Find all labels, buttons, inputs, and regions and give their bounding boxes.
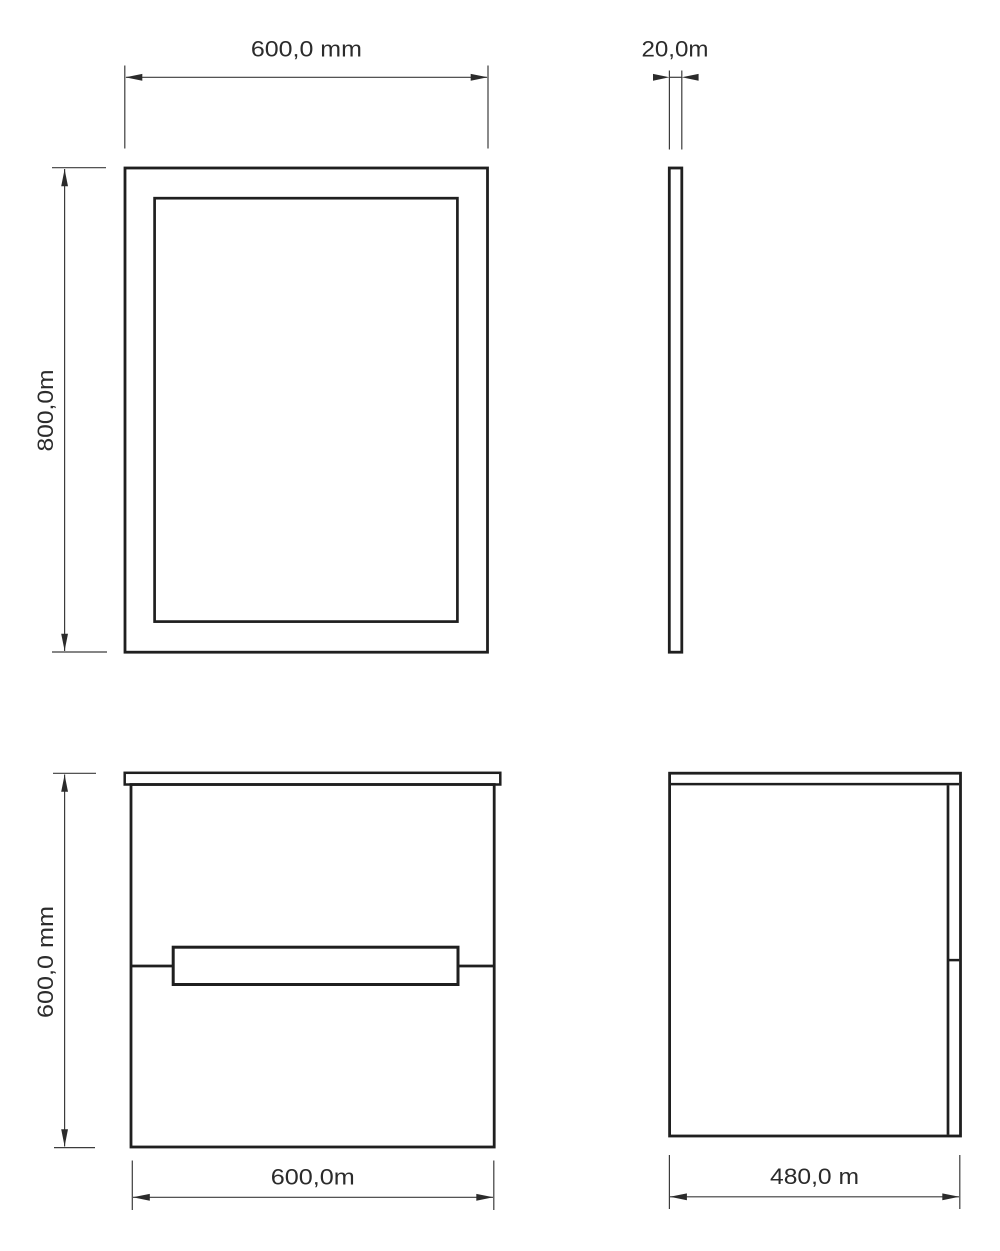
svg-text:800,0m: 800,0m xyxy=(33,370,58,452)
svg-text:600,0 mm: 600,0 mm xyxy=(33,906,58,1018)
svg-text:600,0m: 600,0m xyxy=(271,1165,355,1190)
svg-text:480,0 m: 480,0 m xyxy=(770,1164,859,1189)
svg-text:600,0 mm: 600,0 mm xyxy=(251,36,362,61)
svg-text:20,0m: 20,0m xyxy=(642,36,709,61)
